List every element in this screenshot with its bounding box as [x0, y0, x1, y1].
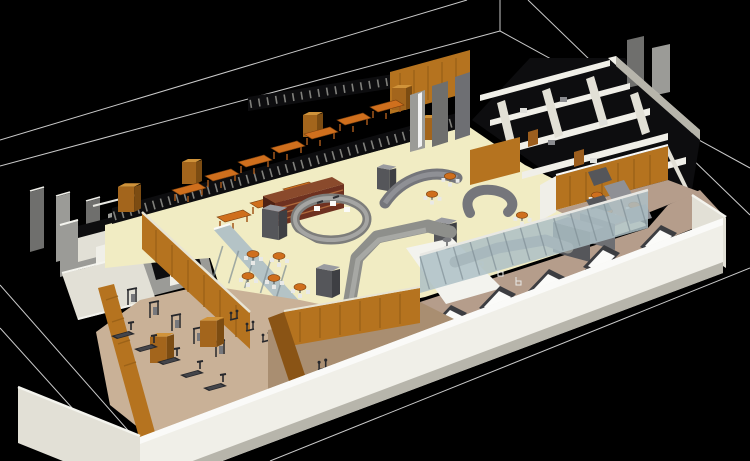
3d-view-canvas[interactable]: [0, 0, 750, 461]
floorplan-3d-render: [0, 0, 750, 461]
